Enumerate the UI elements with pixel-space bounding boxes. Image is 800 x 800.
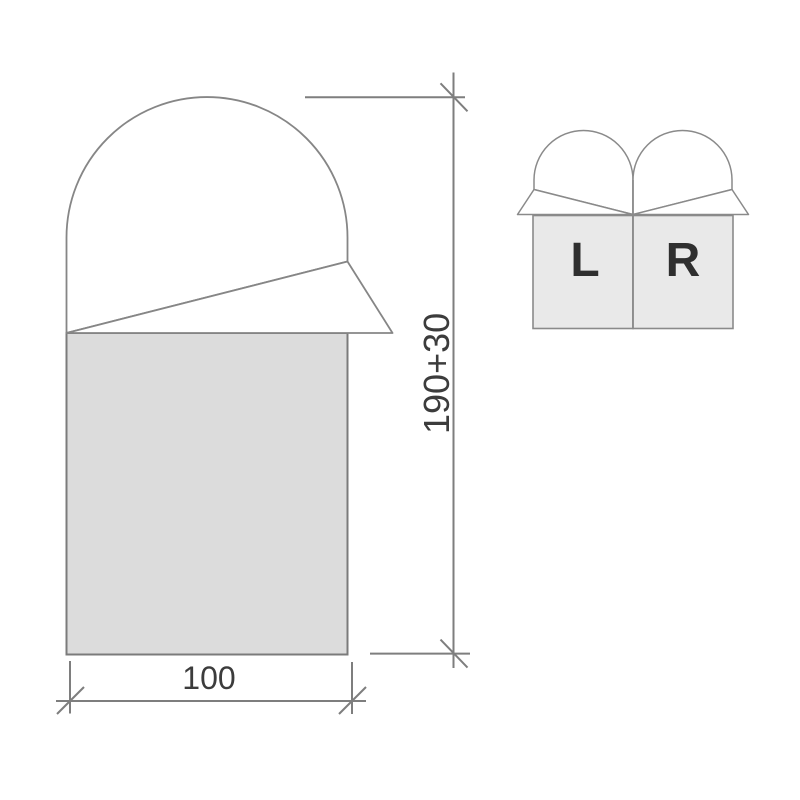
svg-text:L: L [570,234,599,287]
svg-text:100: 100 [182,660,235,696]
svg-text:R: R [666,234,701,287]
svg-text:190+30: 190+30 [416,313,457,434]
